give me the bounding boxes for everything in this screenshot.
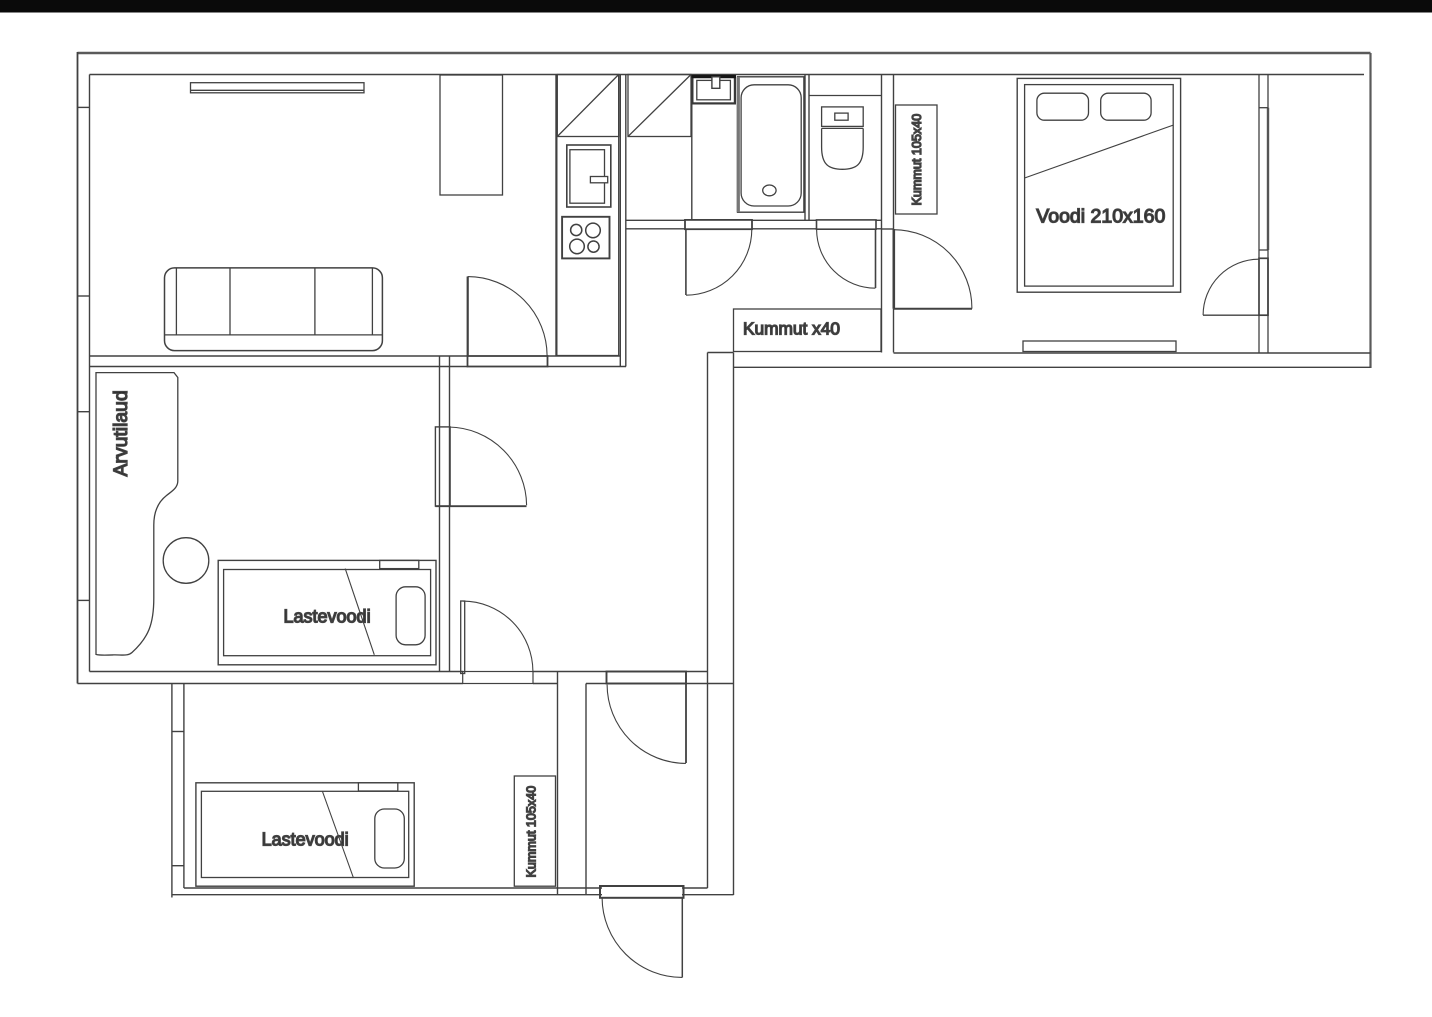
svg-text:Lastevoodi: Lastevoodi — [262, 830, 349, 850]
svg-text:Kummut 105x40: Kummut 105x40 — [525, 786, 539, 878]
svg-text:Arvutilaud: Arvutilaud — [110, 390, 132, 476]
svg-text:Kummut 105x40: Kummut 105x40 — [910, 114, 924, 206]
svg-text:Kummut x40: Kummut x40 — [743, 318, 840, 338]
svg-text:Voodi 210x160: Voodi 210x160 — [1036, 206, 1165, 228]
svg-text:Lastevoodi: Lastevoodi — [284, 607, 371, 627]
